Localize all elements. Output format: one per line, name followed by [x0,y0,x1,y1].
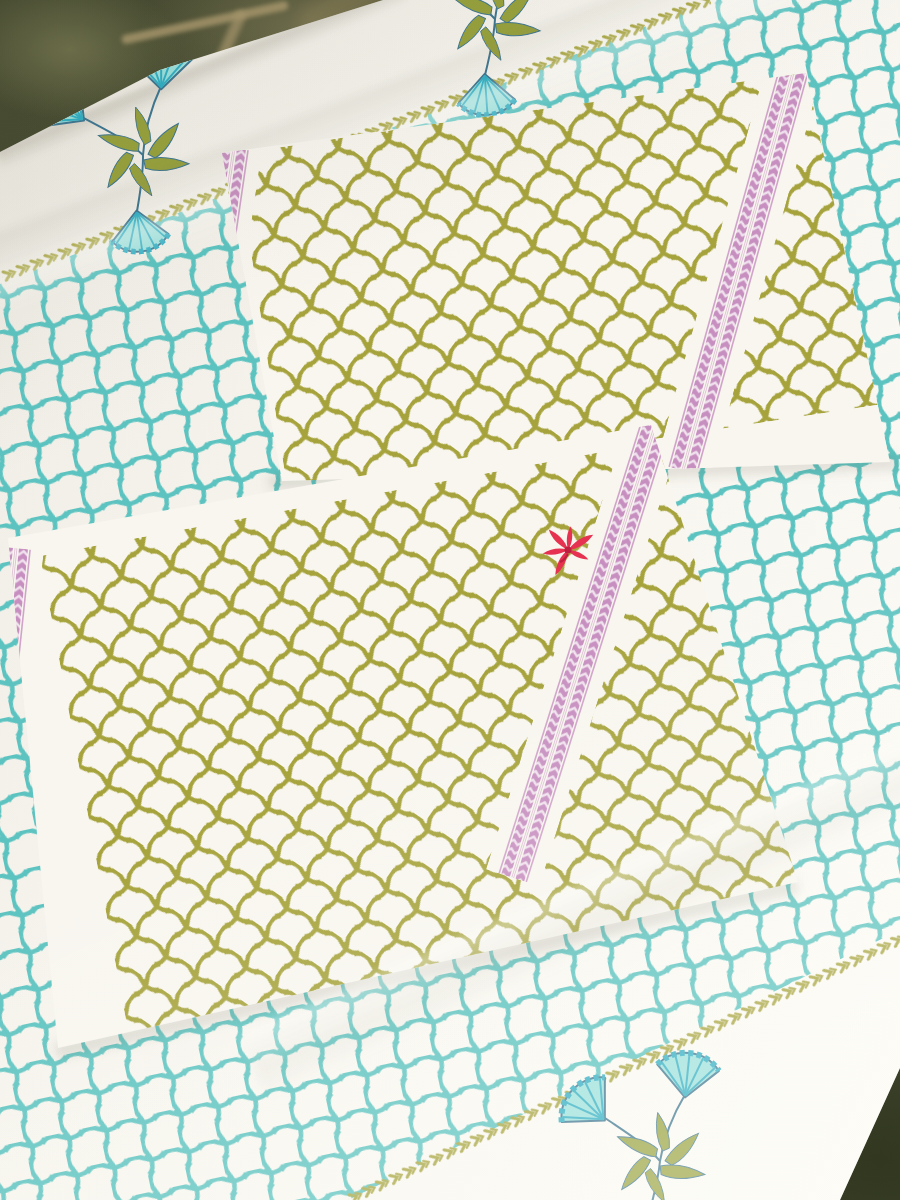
scene [0,0,900,1200]
tablecloth [0,0,900,1200]
red-flower [528,508,608,588]
